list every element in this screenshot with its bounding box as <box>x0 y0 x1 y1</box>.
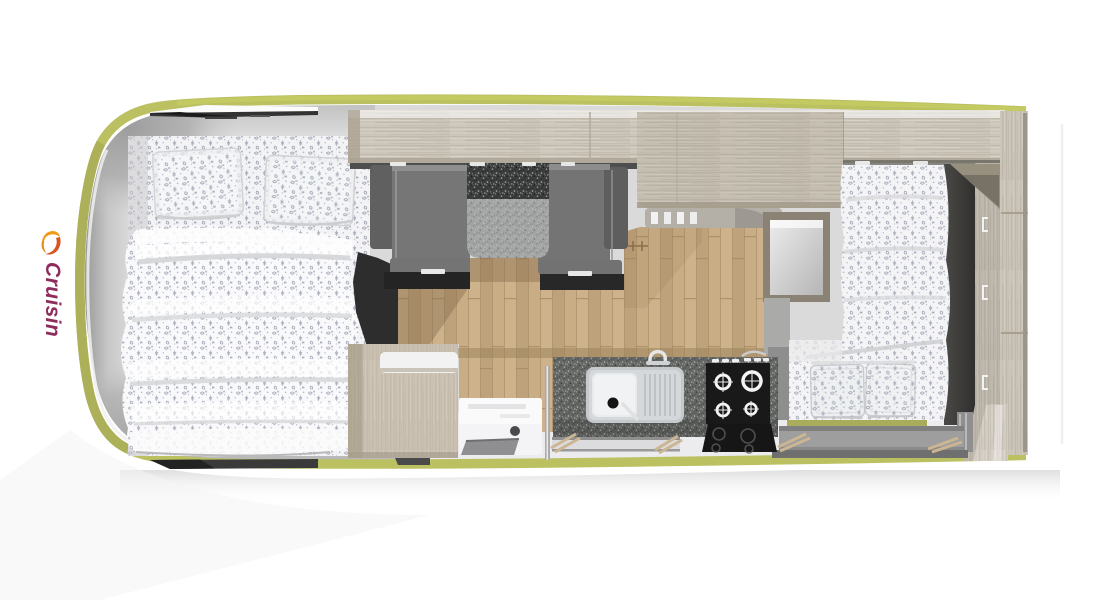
svg-text:Cruisin: Cruisin <box>41 262 64 337</box>
